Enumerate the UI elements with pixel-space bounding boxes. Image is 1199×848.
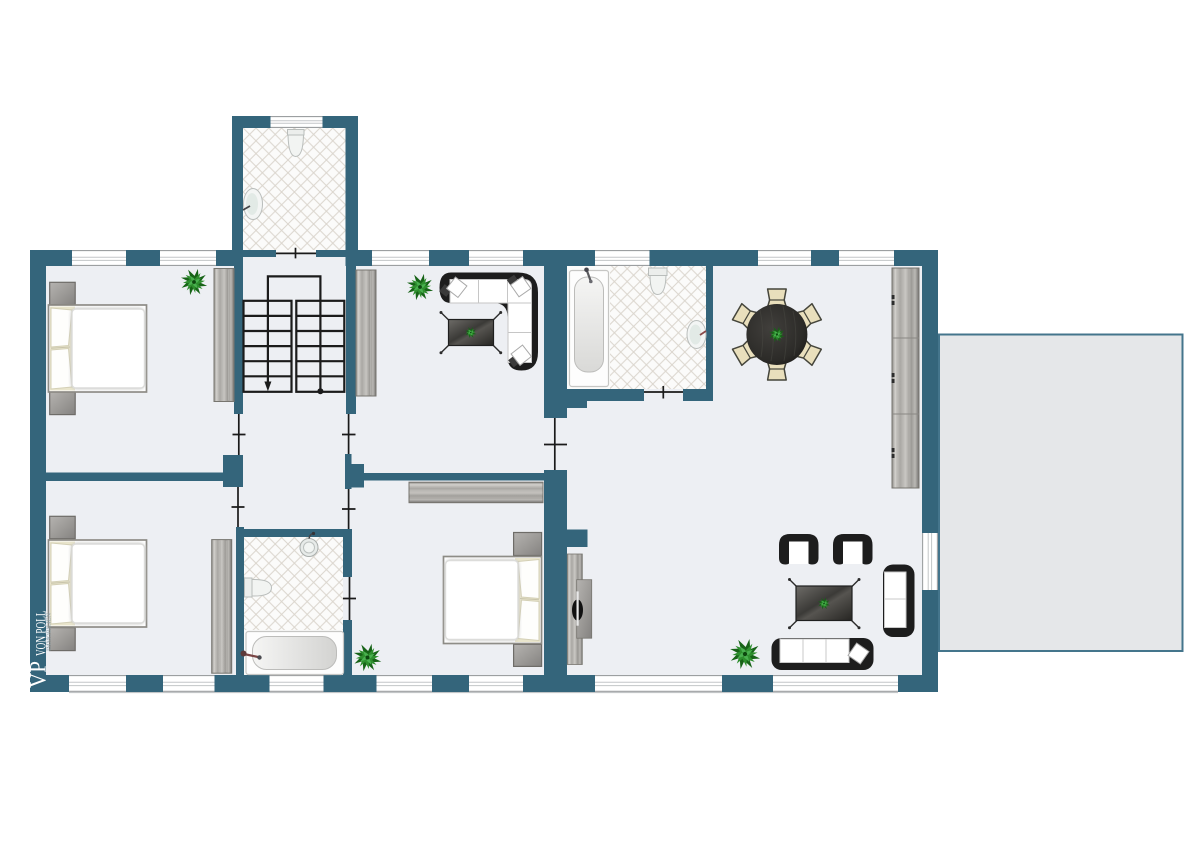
svg-text:IMMOBILIEN: IMMOBILIEN	[47, 612, 53, 651]
svg-text:VP: VP	[26, 661, 51, 688]
